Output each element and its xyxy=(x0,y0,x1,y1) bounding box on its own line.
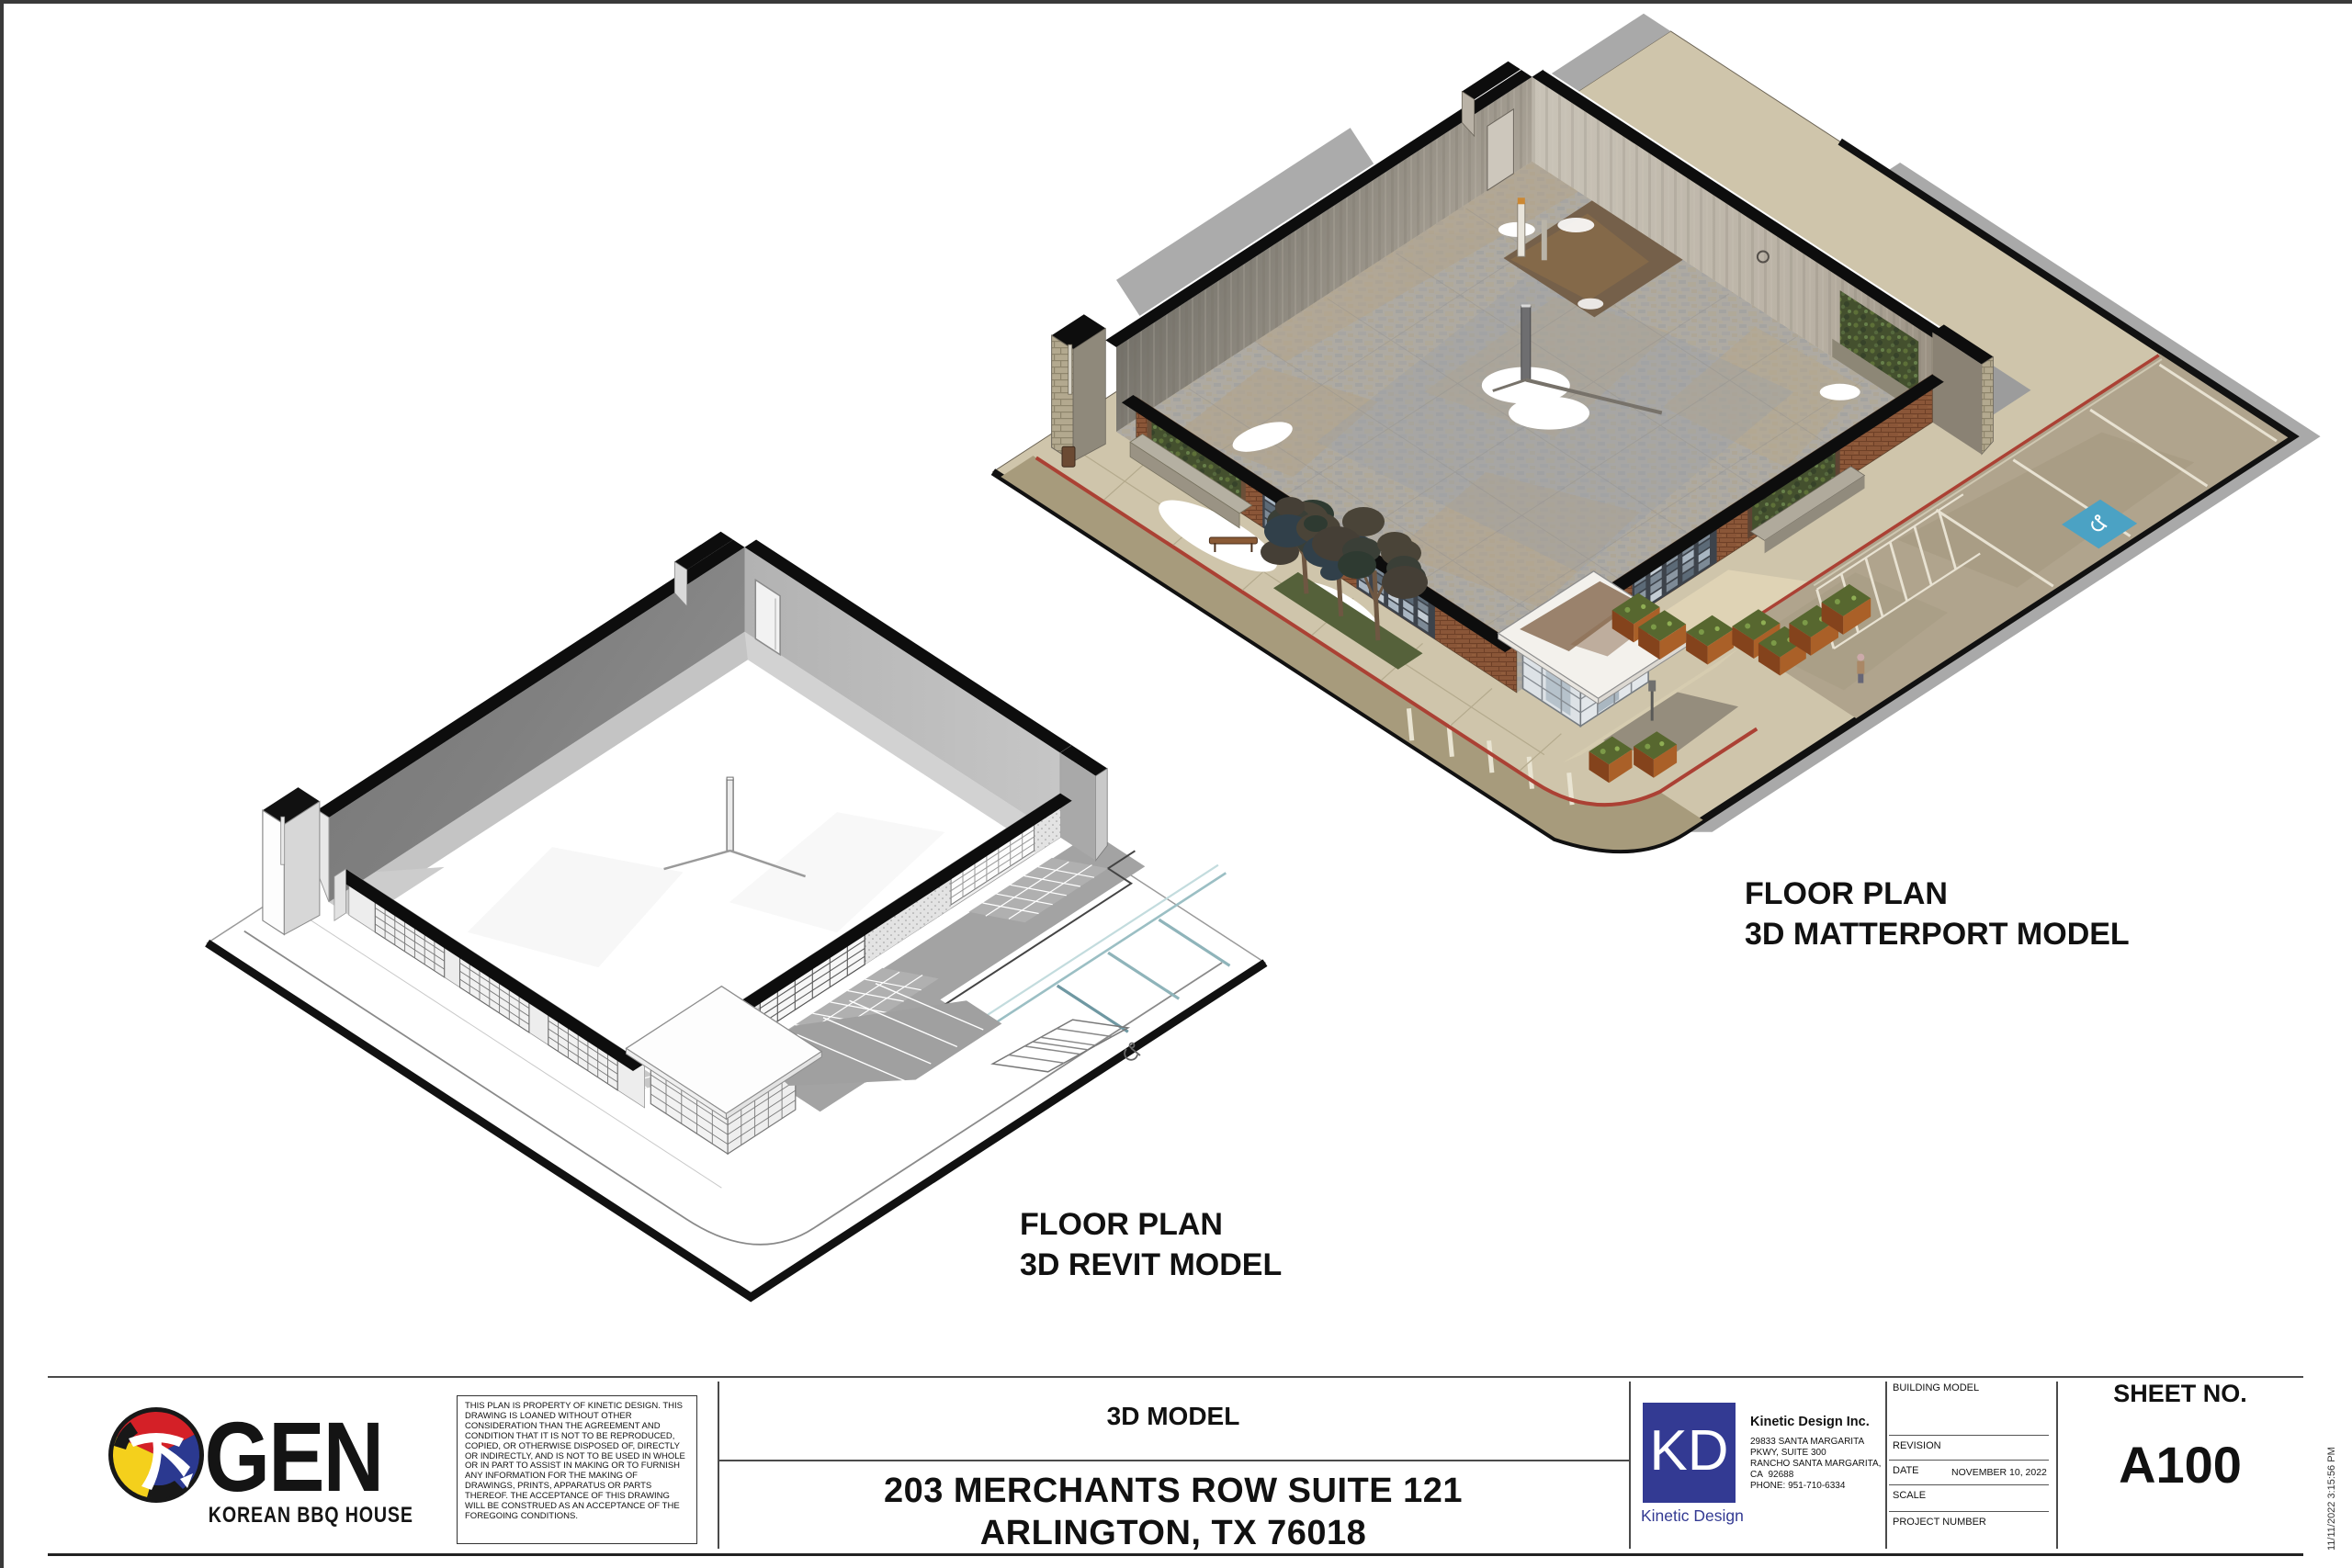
svg-text:3D MATTERPORT MODEL: 3D MATTERPORT MODEL xyxy=(1745,917,2130,952)
svg-text:3D REVIT MODEL: 3D REVIT MODEL xyxy=(1020,1247,1282,1282)
svg-text:FLOOR PLAN: FLOOR PLAN xyxy=(1020,1207,1223,1242)
svg-text:GEN: GEN xyxy=(205,1402,383,1513)
svg-text:KOREAN BBQ HOUSE: KOREAN BBQ HOUSE xyxy=(209,1502,413,1527)
svg-text:FLOOR PLAN: FLOOR PLAN xyxy=(1745,876,1948,911)
